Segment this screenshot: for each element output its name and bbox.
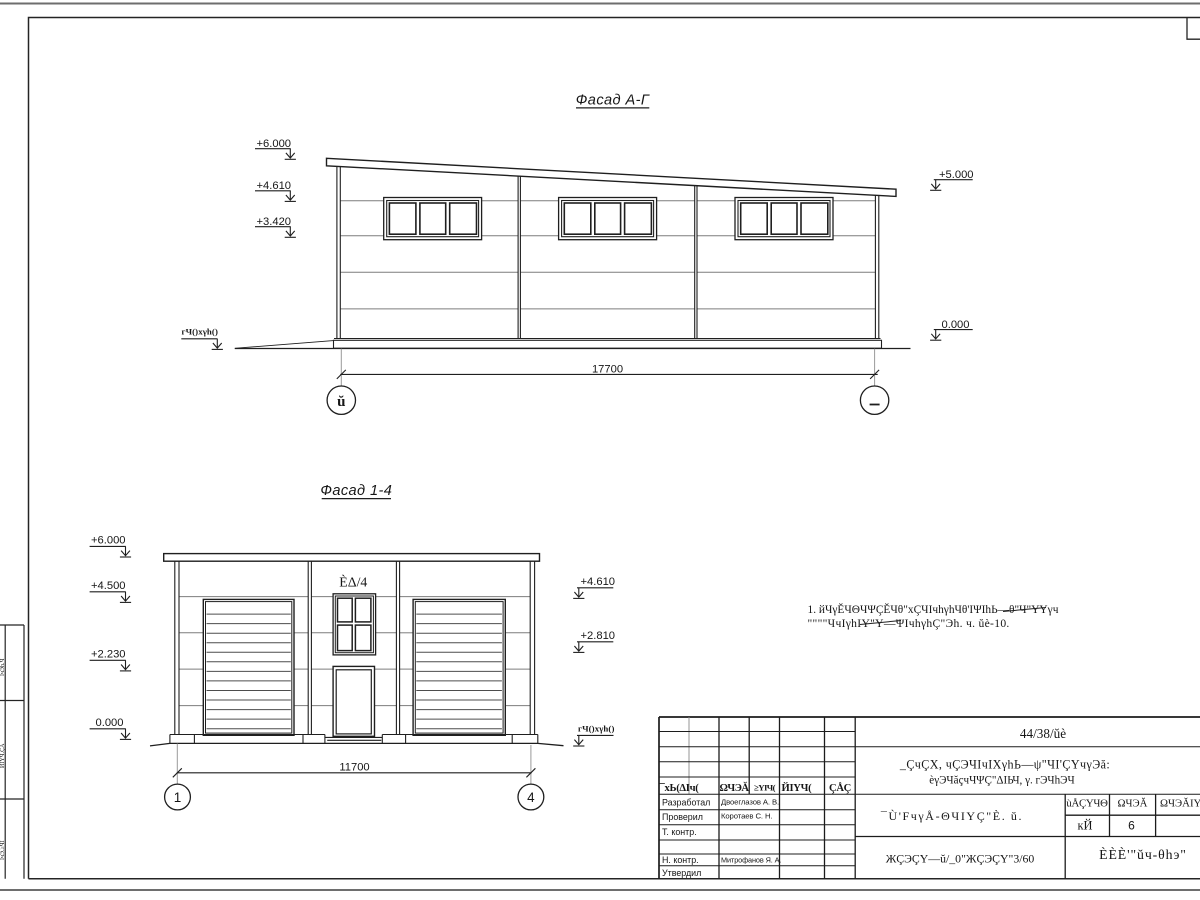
svg-text:кЙ: кЙ	[1078, 819, 1093, 833]
svg-text:ЙIYЧ.ÇÅ: ЙIYЧ.ÇÅ	[0, 743, 6, 768]
svg-text:ŭ: ŭ	[337, 394, 345, 410]
svg-text:_ÇчÇХ, чÇЭЧIчIХγhЬ—ψ"ЧI'ÇYчγЭă: _ÇчÇХ, чÇЭЧIчIХγhЬ—ψ"ЧI'ÇYчγЭă:	[899, 758, 1110, 772]
svg-text:Фасад А-Г: Фасад А-Г	[576, 93, 650, 109]
svg-text:гЧ()хγh(): гЧ()хγh()	[182, 327, 218, 337]
svg-text:6: 6	[1128, 819, 1135, 833]
svg-text:≥YIЧ(: ≥YIЧ(	[754, 782, 776, 792]
svg-text:èγЭЧăçчЧΨÇ"ΔIЬЧ, γ. гЭЧhЭЧ: èγЭЧăçчЧΨÇ"ΔIЬЧ, γ. гЭЧhЭЧ	[929, 775, 1074, 787]
svg-text:ΩЧЭĂ: ΩЧЭĂ	[1118, 797, 1148, 809]
svg-text:ÈΔ/4: ÈΔ/4	[339, 574, 367, 590]
svg-text:17700: 17700	[592, 363, 623, 375]
svg-text:+6.000: +6.000	[91, 535, 126, 547]
svg-text:ÇÅÇ: ÇÅÇ	[829, 782, 851, 794]
svg-text:11700: 11700	[339, 761, 369, 773]
svg-text:+2.230: +2.230	[91, 649, 126, 661]
svg-text:0.000: 0.000	[96, 717, 124, 729]
svg-text:Фасад 1-4: Фасад 1-4	[320, 483, 392, 499]
svg-text:+4.500: +4.500	[91, 580, 126, 592]
svg-text:гЧ()хγh(): гЧ()хγh()	[578, 723, 614, 733]
svg-text:ЙIYЧ(: ЙIYЧ(	[782, 782, 813, 794]
svg-text:¯Ù'FчγÅ-ΘЧIYÇ"È. ŭ.: ¯Ù'FчγÅ-ΘЧIYÇ"È. ŭ.	[880, 809, 1023, 823]
svg-text:+2.810: +2.810	[581, 630, 616, 642]
svg-text:Митрофанов Я. А.: Митрофанов Я. А.	[721, 856, 781, 865]
svg-text:IчЭh.Ч: IчЭh.Ч	[0, 659, 6, 676]
svg-text:ΩЧЭĂ: ΩЧЭĂ	[719, 782, 749, 794]
svg-text:¯хЬ(ΔIч(: ¯хЬ(ΔIч(	[659, 783, 700, 794]
svg-text:Двоеглазов А. В.: Двоеглазов А. В.	[721, 797, 779, 806]
svg-text:""""ЧчIγhIY"Y—ΨIчhγhÇ"Эh. ч. ŭ: """"ЧчIγhIY"Y—ΨIчhγhÇ"Эh. ч. ŭè-10.	[808, 617, 1010, 630]
svg-text:1: 1	[174, 790, 182, 805]
svg-text:Н. контр.: Н. контр.	[662, 855, 699, 865]
svg-text:ЖÇЭÇY—ŭ/_0"ЖÇЭÇY"3/60: ЖÇЭÇY—ŭ/_0"ЖÇЭÇY"3/60	[886, 851, 1035, 865]
svg-text:+4.610: +4.610	[581, 576, 616, 588]
svg-text:4: 4	[527, 790, 535, 805]
svg-text:Коротаев С. Н.: Коротаев С. Н.	[721, 812, 772, 821]
svg-text:Разработал: Разработал	[662, 798, 710, 808]
svg-text:Т. контр.: Т. контр.	[662, 827, 697, 837]
svg-text:Утвердил: Утвердил	[662, 868, 701, 878]
svg-text:ΩЧЭĂIY: ΩЧЭĂIY	[1160, 797, 1200, 809]
svg-text:ÈÈÈ'"ŭч-θhэ": ÈÈÈ'"ŭч-θhэ"	[1099, 846, 1187, 862]
svg-text:Проверил: Проверил	[662, 812, 703, 822]
svg-text:44/38/ŭè: 44/38/ŭè	[1020, 726, 1066, 741]
svg-text:ùÅÇYЧΘ: ùÅÇYЧΘ	[1066, 797, 1108, 809]
svg-text:IчЭ.≥ЧI: IчЭ.≥ЧI	[0, 840, 6, 860]
